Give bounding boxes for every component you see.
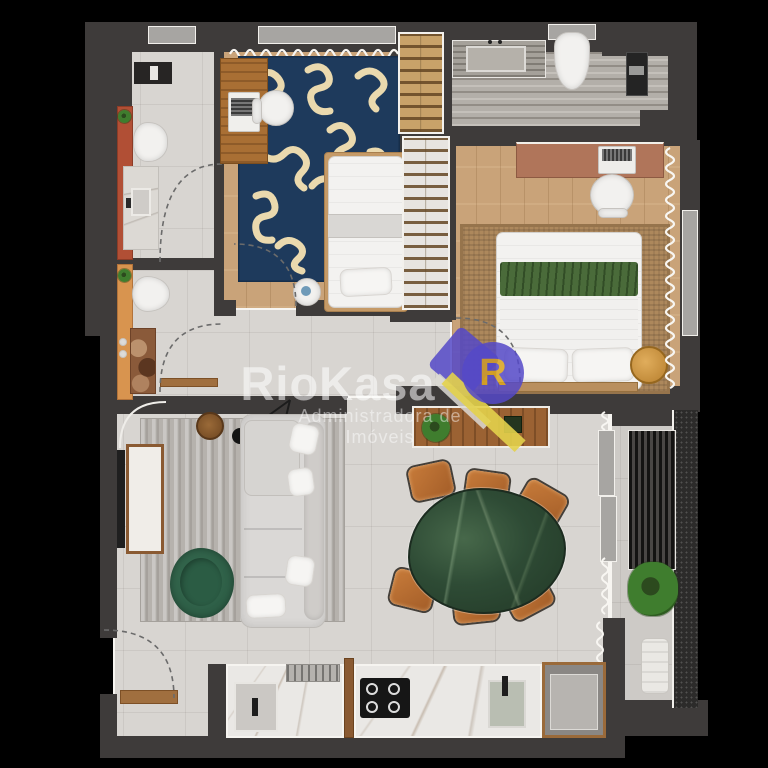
desk-chair-back-2	[598, 208, 628, 218]
curtain-balcony-top	[597, 410, 611, 434]
balcony-ac-unit	[641, 638, 669, 694]
wall-top-left-block	[85, 22, 132, 112]
wall-top-right-step	[602, 22, 697, 56]
burner-3	[366, 701, 378, 713]
sink-ensuite	[466, 46, 526, 72]
laptop-keyboard-2	[602, 149, 632, 161]
shower-column-detail	[629, 66, 644, 75]
decor-bowl-blue	[301, 286, 311, 296]
brand-logo: R	[436, 330, 546, 430]
wall-left-upper	[85, 108, 117, 336]
burner-1	[366, 683, 378, 695]
tv-console	[126, 444, 164, 554]
faucet-dot-1	[488, 40, 492, 44]
green-armchair-seat	[180, 558, 222, 606]
soap-dish-2	[119, 350, 127, 358]
closet-rack-upper	[398, 32, 444, 134]
sink-bathroom1	[131, 188, 151, 216]
shower-niche-shelf	[150, 66, 158, 80]
kitchen-faucet-2	[502, 676, 508, 696]
floor-plan-canvas: RioKasa Administradora de Imóveis R	[0, 0, 768, 768]
desk-chair-back-1	[252, 98, 262, 124]
window-bathroom1	[148, 26, 196, 44]
pillow-bedroom1	[339, 267, 392, 298]
balcony-slat-panel	[628, 430, 676, 570]
desk-bedroom2	[516, 142, 664, 178]
window-bedroom2	[682, 210, 698, 336]
sofa-pillow-2	[286, 466, 316, 497]
watermark-brand: RioKasa	[226, 356, 450, 411]
sliding-door-panel-1	[598, 430, 615, 496]
kitchen-appliance	[286, 664, 340, 682]
plant-bathroom1	[118, 110, 131, 123]
curtain-bedroom2	[660, 146, 678, 394]
closet-rack-lower	[402, 136, 450, 310]
door-arc-bathroom1	[156, 158, 226, 268]
cabinet-rust-marble	[130, 328, 156, 394]
kitchen-wood-divider	[344, 658, 354, 738]
kitchen-wood-unit-front	[550, 674, 598, 730]
curtain-balcony-bottom	[597, 556, 611, 622]
soap-dish-1	[119, 338, 127, 346]
logo-circle: R	[462, 342, 524, 404]
faucet-bathroom1	[126, 198, 131, 208]
toilet-bathroom1	[133, 122, 168, 162]
wall-mounted-tv	[117, 450, 125, 548]
window-bedroom1	[258, 26, 396, 44]
desk-chair-bedroom1	[258, 90, 294, 126]
door-arc-bathroom2	[156, 320, 226, 396]
burner-4	[388, 701, 400, 713]
sofa-pillow-3	[284, 554, 316, 588]
bed1-folded-blanket	[328, 214, 404, 238]
logo-letter: R	[479, 352, 506, 395]
door-arc-bedroom1	[230, 240, 302, 310]
sofa-pillow-4	[245, 593, 286, 619]
green-throw-blanket	[500, 262, 638, 296]
faucet-dot-2	[498, 40, 502, 44]
sofa-seam-1	[244, 528, 302, 530]
wall-left-middle	[100, 336, 117, 638]
door-arc-entry	[98, 626, 178, 704]
burner-2	[388, 683, 400, 695]
plant-bathroom2	[118, 269, 131, 282]
pillow-bedroom2-right	[571, 347, 634, 383]
wall-bottom	[100, 736, 625, 758]
sliding-door-panel-2	[600, 496, 617, 562]
wall-entry-kitchen-stub	[208, 664, 226, 750]
kitchen-faucet-1	[252, 698, 258, 716]
round-side-table	[196, 412, 224, 440]
balcony-plant	[628, 562, 678, 616]
